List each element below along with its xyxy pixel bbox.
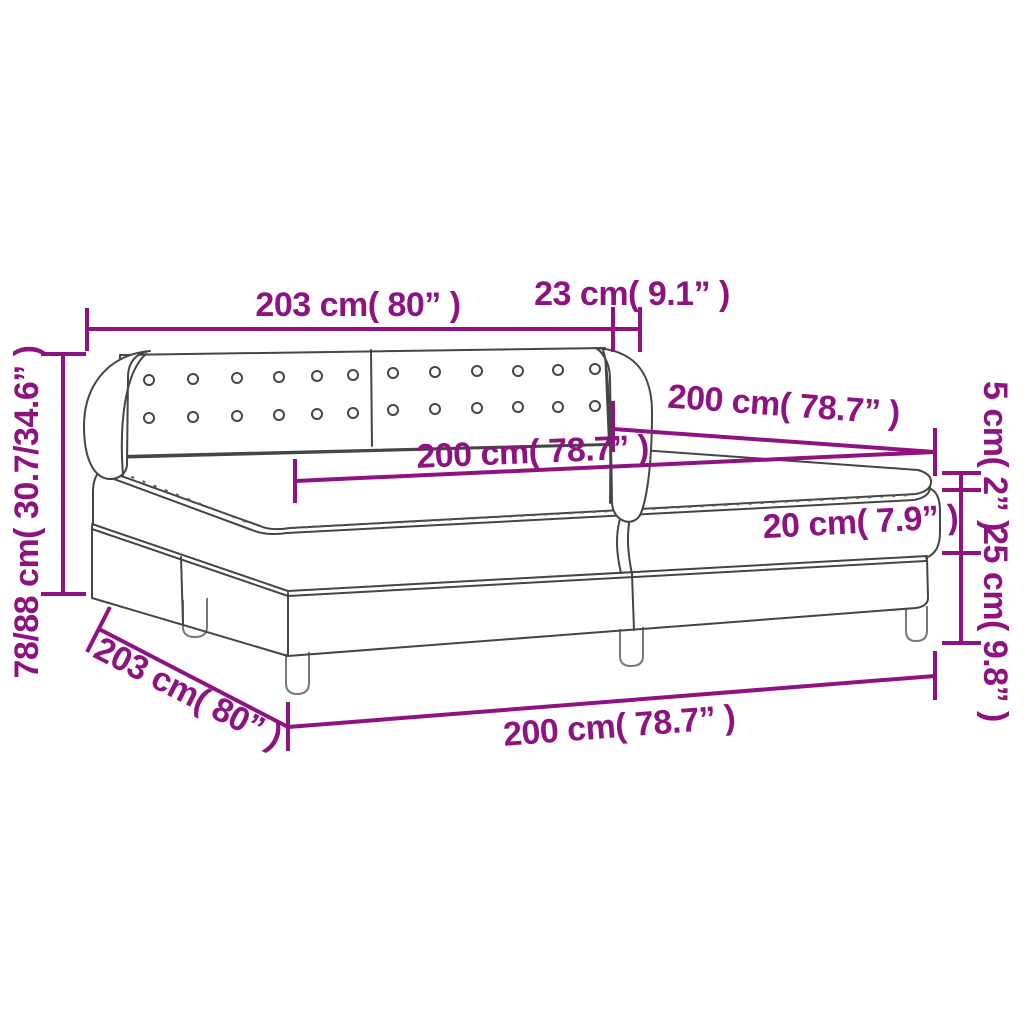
headboard-button xyxy=(144,375,154,385)
headboard-button xyxy=(590,401,600,411)
headboard-button xyxy=(274,410,284,420)
headboard-panel-divider xyxy=(371,350,372,446)
diagram-canvas: 203 cm( 80” ) 23 cm( 9.1” ) 200 cm( 78.7… xyxy=(0,0,1024,1024)
headboard-button xyxy=(348,370,358,380)
headboard-button xyxy=(274,372,284,382)
headboard-button xyxy=(472,403,482,413)
base-seam-side xyxy=(632,574,634,630)
headboard-button xyxy=(232,411,242,421)
headboard-button xyxy=(513,402,523,412)
headboard-button xyxy=(348,408,358,418)
dim-total-height-label: 78/88 cm( 30.7/34.6” ) xyxy=(8,345,46,678)
dim-base-width-label: 203 cm( 80” ) xyxy=(88,630,288,757)
headboard-button xyxy=(312,409,322,419)
headboard-button xyxy=(188,374,198,384)
headboard-button xyxy=(553,365,563,375)
dim-headboard-width-label: 203 cm( 80” ) xyxy=(255,286,460,324)
headboard-button xyxy=(472,366,482,376)
headboard-button xyxy=(312,371,322,381)
dim-total-height: 78/88 cm( 30.7/34.6” ) xyxy=(8,345,86,678)
headboard-button xyxy=(388,405,398,415)
mattress-seam-left-curve xyxy=(617,519,621,573)
dim-base-height-label: 25 cm( 9.8” ) xyxy=(976,526,1014,722)
bed-leg-middle xyxy=(620,627,643,666)
base-top-welt-front xyxy=(92,529,288,596)
bed-leg-right xyxy=(906,606,927,641)
headboard-button xyxy=(430,367,440,377)
dim-bed-length-top-label: 200 cm( 78.7” ) xyxy=(666,378,901,433)
headboard-button xyxy=(188,412,198,422)
headboard-button xyxy=(590,364,600,374)
dim-base-length: 200 cm( 78.7” ) xyxy=(288,651,935,754)
headboard-button xyxy=(513,366,523,376)
headboard-button xyxy=(144,413,154,423)
base-top-welt-side xyxy=(288,561,926,596)
headboard-button xyxy=(388,368,398,378)
dim-wing-depth-label: 23 cm( 9.1” ) xyxy=(534,275,730,313)
dim-right-height-stack: 5 cm( 2” ) 25 cm( 9.8” ) xyxy=(942,381,1014,722)
base-top-edge-side xyxy=(288,556,927,591)
base-seam-front xyxy=(181,557,183,624)
dim-mattress-thickness-label: 20 cm( 7.9” ) xyxy=(762,498,959,546)
headboard-button xyxy=(430,404,440,414)
headboard-button xyxy=(232,373,242,383)
bed-leg-corner xyxy=(286,652,309,694)
headboard-button xyxy=(553,402,563,412)
mattress-seam xyxy=(628,518,632,574)
bed-dimension-diagram: 203 cm( 80” ) 23 cm( 9.1” ) 200 cm( 78.7… xyxy=(0,0,1024,1024)
mattress-left-edge xyxy=(93,470,101,525)
dimension-line xyxy=(613,429,935,452)
dim-wing-depth: 23 cm( 9.1” ) xyxy=(534,275,730,352)
dim-topper-thickness-label: 5 cm( 2” ) xyxy=(976,381,1014,531)
base-top-edge-front xyxy=(92,524,288,591)
